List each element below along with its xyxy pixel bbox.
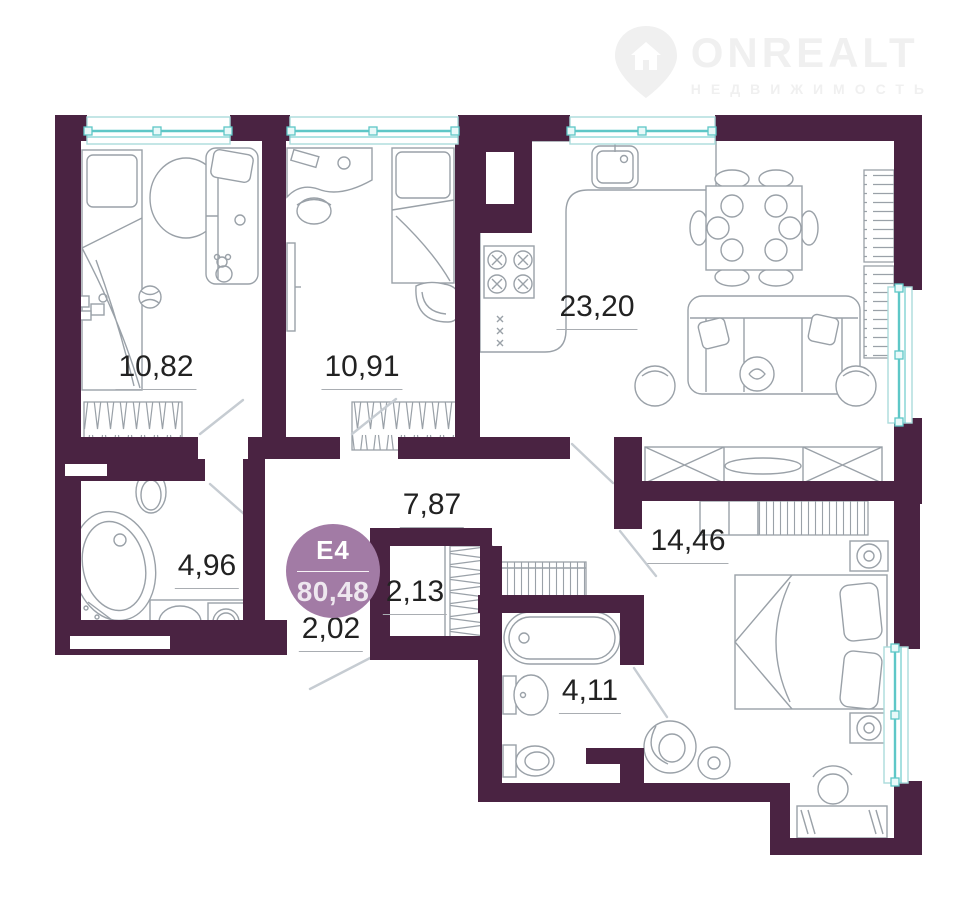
- room-label-bedroom-3: 14,46: [647, 526, 728, 564]
- floor-plan-page: 10,82 10,91 23,20 7,87 2,13 2,02 4,96 4,…: [0, 0, 960, 910]
- room-label-wc: 4,11: [559, 676, 621, 714]
- room-label-bathroom: 4,96: [175, 551, 239, 589]
- window-bedroom2: [287, 117, 459, 144]
- onrealt-logo: ONREALT НЕДВИЖИМОСТЬ: [613, 24, 934, 105]
- window-kitchen: [567, 117, 716, 144]
- logo-pin-icon: [613, 24, 679, 105]
- room-label-kitchen-living: 23,20: [556, 292, 637, 330]
- room-label-bedroom-2: 10,91: [321, 352, 402, 390]
- logo-text: ONREALT НЕДВИЖИМОСТЬ: [691, 32, 934, 97]
- unit-number: Е4: [316, 535, 350, 566]
- room-label-closet: 2,13: [383, 577, 447, 615]
- unit-total-area: 80,48: [297, 576, 370, 608]
- tv-cabinet: [645, 447, 882, 483]
- logo-brand: ONREALT: [691, 32, 919, 74]
- room-label-corridor: 2,02: [299, 614, 363, 652]
- floor-plan-svg: [0, 0, 960, 910]
- bedroom1-furniture: [76, 148, 258, 450]
- bedroom2-furniture: [287, 148, 460, 450]
- badge-divider: [297, 571, 369, 572]
- room-label-bedroom-1: 10,82: [115, 352, 196, 390]
- window-bedroom1: [84, 117, 232, 144]
- room-label-hallway: 7,87: [400, 490, 464, 528]
- logo-tagline: НЕДВИЖИМОСТЬ: [691, 81, 934, 97]
- dining-set: [690, 170, 818, 286]
- window-bedroom3: [884, 644, 908, 786]
- window-living-room: [888, 284, 912, 426]
- unit-badge: Е4 80,48: [286, 524, 380, 618]
- hallway-shoe-cabinet: [498, 562, 586, 598]
